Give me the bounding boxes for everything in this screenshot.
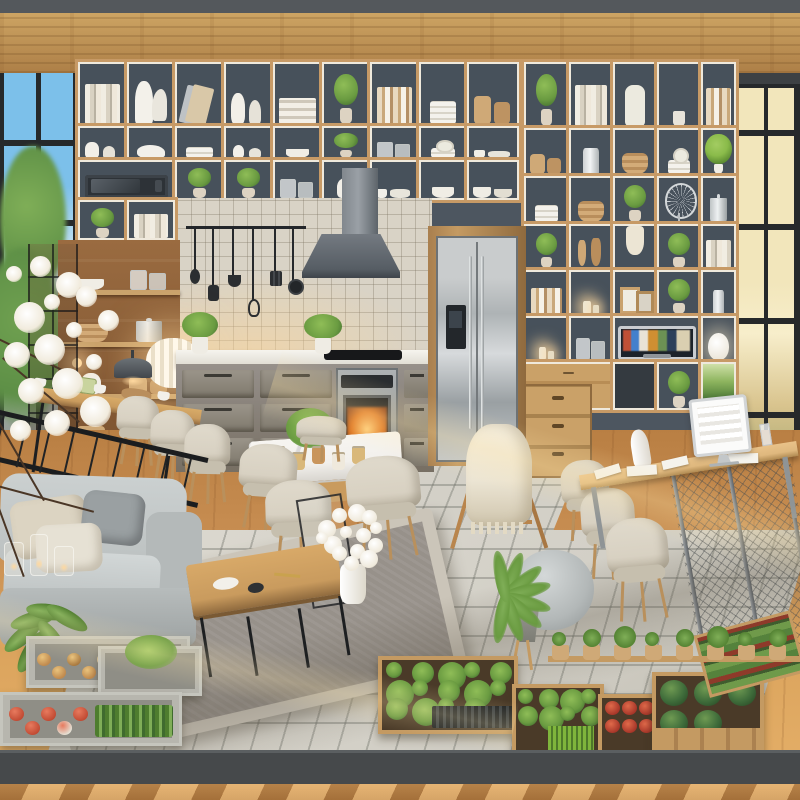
- red-flower: [622, 719, 637, 733]
- platform-edge: [0, 750, 800, 786]
- shelf-item-plant: [331, 74, 362, 124]
- utensil-handle: [212, 229, 214, 287]
- blossom-cluster: [316, 532, 328, 544]
- seedling-tuft: [614, 626, 636, 648]
- shelf-cubby: [569, 128, 613, 176]
- shelf-item-books2: [377, 87, 412, 124]
- chair-leg: [302, 443, 308, 460]
- shelf-item-vases: [228, 93, 269, 124]
- seedling-pot: [645, 645, 662, 660]
- shelf-cubby: [78, 160, 175, 200]
- tomato-greens-tray: [0, 692, 182, 746]
- shelf-item-books: [706, 240, 730, 268]
- tomato: [25, 721, 40, 735]
- shelf-cubby: [613, 270, 657, 316]
- shelf-item-jar: [713, 290, 725, 314]
- shelf-item-books2: [531, 288, 563, 314]
- table-leg: [246, 616, 258, 676]
- shelf-item-candle: [579, 297, 603, 314]
- chair-leg: [571, 510, 576, 541]
- foreground-wood-floor: [0, 784, 800, 800]
- vent-grille: [432, 706, 516, 728]
- utensil-pan: [288, 229, 300, 295]
- onion: [82, 666, 96, 679]
- fridge-handle: [469, 256, 472, 429]
- counter-herb-pot: [304, 314, 342, 354]
- shelf-cubby: [78, 62, 127, 126]
- shelf-cubby: [175, 126, 224, 160]
- shelf-cubby: [224, 62, 273, 126]
- shelf-item-dishes: [186, 147, 212, 158]
- shelf-cubby: [569, 62, 613, 128]
- papers: [627, 464, 658, 476]
- wood-armchair-with-blanket: [448, 420, 552, 552]
- cabbage-head: [660, 680, 688, 706]
- herb-tuft: [490, 680, 506, 696]
- radish: [57, 721, 72, 735]
- shelf-item-jar: [583, 148, 598, 174]
- shelf-cubby: [175, 160, 224, 200]
- shelf-item-microwave: [85, 175, 169, 198]
- babys-breath-bouquet: [310, 502, 386, 606]
- onion: [52, 666, 66, 679]
- shelf-cubby: [78, 200, 127, 240]
- shelf-item-books2: [706, 88, 730, 126]
- shelf-item-fan: [663, 183, 694, 222]
- shelf-cubby: [701, 224, 736, 270]
- lamp-shade: [114, 358, 152, 378]
- desk-leg: [783, 457, 798, 519]
- herb-box: [378, 656, 518, 734]
- utensil-handle: [252, 229, 254, 301]
- shelf-cubby: [701, 270, 736, 316]
- shelf-item-hooks: [574, 238, 608, 268]
- white-carafe: [629, 428, 653, 468]
- herb-tuft: [386, 698, 408, 720]
- stool-leg: [526, 640, 533, 670]
- shelf-item-jars: [574, 340, 608, 360]
- seedling-pot-ledge: [548, 624, 800, 670]
- shelf-cubby: [657, 128, 701, 176]
- fridge-handle: [481, 256, 484, 429]
- tomato: [9, 707, 24, 721]
- utensil-head: [288, 279, 304, 295]
- shelf-cubby: [657, 176, 701, 224]
- shelf-item-boxes: [472, 96, 513, 124]
- shelf-item-bin: [625, 85, 645, 126]
- shelf-cubby: [524, 176, 569, 224]
- chair-leg: [640, 582, 646, 622]
- seedling-leaves: [125, 635, 177, 669]
- utensil-ladle: [228, 229, 240, 291]
- pantry-jars: [128, 272, 171, 290]
- shelf-cubby: [322, 62, 370, 126]
- shelf-item-frames: [618, 292, 652, 314]
- shelf-cubby: [224, 160, 273, 200]
- shelf-cubby: [370, 126, 419, 160]
- seedling-pot: [552, 645, 569, 660]
- desktop-monitor: [688, 394, 753, 470]
- drawer-handle: [410, 442, 424, 445]
- shelf-item-dishes: [535, 205, 559, 222]
- shelf-item-plant: [184, 168, 216, 198]
- seedling-tray: [98, 646, 202, 696]
- seedling-pot: [676, 645, 693, 660]
- shelf-cubby: [613, 316, 701, 362]
- shelf-cubby: [524, 270, 569, 316]
- pantry-bowl: [78, 279, 104, 290]
- shelf-item-figurines: [231, 145, 267, 158]
- shelf-cubby: [127, 200, 175, 240]
- shelf-cubby: [127, 126, 175, 160]
- shelf-item-books: [134, 214, 168, 238]
- shelf-cubby: [524, 128, 569, 176]
- herb-tuft: [412, 680, 428, 696]
- oven-control-panel: [341, 375, 392, 387]
- pantry-item-pot: [124, 304, 174, 342]
- shelf-cubby: [370, 62, 419, 126]
- drawer-handle: [410, 408, 424, 411]
- herb-foliage: [182, 312, 218, 338]
- herb-tuft: [518, 689, 533, 704]
- shelf-cubby: [467, 160, 519, 200]
- shelf-item-cups: [375, 189, 415, 198]
- shelf-cubby: [569, 270, 613, 316]
- shelf-cubby: [419, 126, 467, 160]
- monitor-screen: [688, 394, 752, 458]
- utensil-spoon: [190, 229, 202, 285]
- chair-leg: [620, 582, 624, 622]
- shelf-cubby: [613, 176, 657, 224]
- seedling-tuft: [738, 632, 752, 646]
- shelf-item-boxes: [529, 154, 564, 174]
- shelf-cubby: [613, 128, 657, 176]
- utensil-handle: [274, 229, 276, 273]
- shelf-cubby: [467, 62, 519, 126]
- herb-tuft: [386, 662, 402, 678]
- chair-leg: [242, 494, 251, 527]
- onion: [37, 653, 51, 666]
- shelf-cubby: [224, 126, 273, 160]
- chair-leg: [386, 520, 392, 560]
- blossom-cluster: [370, 522, 382, 534]
- cup: [93, 384, 106, 395]
- utensil-head: [228, 275, 241, 287]
- shelf-item-plant: [532, 233, 561, 268]
- ice-water-dispenser: [446, 305, 466, 349]
- shelf-item-pitcher: [129, 81, 173, 124]
- shelf-cubby: [273, 62, 322, 126]
- blossom-cluster: [360, 550, 378, 568]
- pantry-pot: [136, 321, 162, 342]
- shelf-item-candle: [534, 343, 559, 360]
- shelf-item-topiary: [704, 134, 733, 174]
- blossom-cluster: [344, 556, 359, 571]
- herb-pot: [192, 337, 208, 354]
- chair-leg: [657, 579, 668, 619]
- shelf-cubby: [569, 176, 613, 224]
- range-hood-duct: [342, 168, 378, 238]
- pantry-item-jars: [124, 252, 174, 290]
- drawer-handle: [204, 374, 232, 377]
- shelf-cubby: [322, 126, 370, 160]
- shelf-item-jars: [375, 144, 414, 158]
- red-flower: [622, 701, 637, 715]
- shelf-item-pot: [710, 198, 726, 222]
- shelf-cubby: [701, 316, 736, 362]
- shelf-cubby: [657, 62, 701, 128]
- shelf-cubby: [175, 62, 224, 126]
- shelf-item-tv: [618, 326, 695, 360]
- dome-task-lamp: [110, 350, 156, 392]
- shelf-item-vases: [82, 142, 123, 158]
- drawer-handle: [282, 374, 310, 377]
- shelf-item-bowl: [286, 149, 309, 158]
- red-flower: [605, 701, 620, 715]
- lamp-glow: [122, 376, 144, 386]
- utensil-turner: [270, 229, 282, 287]
- shelf-item-gourd: [708, 333, 728, 360]
- blossom-cluster: [340, 526, 352, 538]
- shelf-cubby: [569, 316, 613, 362]
- shelf-cubby: [78, 126, 127, 160]
- shelf-item-basket: [622, 153, 648, 174]
- shelf-item-greens: [662, 71, 696, 126]
- utensil-handle: [292, 229, 294, 281]
- utensil-handle: [232, 229, 234, 277]
- shelf-cubby: [467, 126, 519, 160]
- chair-leg: [220, 472, 226, 502]
- shelf-item-big-books: [279, 98, 316, 124]
- herb-tuft: [581, 689, 596, 704]
- herb-tuft: [518, 706, 538, 726]
- chair-leg: [407, 516, 418, 556]
- shelf-cubby: [701, 176, 736, 224]
- shelf-cubby: [613, 62, 657, 128]
- shelf-item-plant: [621, 185, 649, 222]
- shelf-cubby: [419, 160, 467, 200]
- shelf-cubby: [524, 62, 569, 128]
- shelf-item-books: [575, 85, 606, 126]
- shelf-cubby: [613, 224, 657, 270]
- shelf-item-dark: [615, 364, 655, 408]
- seedling-tuft: [645, 632, 659, 646]
- utensil-head: [208, 285, 219, 301]
- tomato: [73, 707, 88, 721]
- knit-throw-blanket: [466, 424, 532, 526]
- potato: [67, 653, 81, 666]
- shelf-item-dishes: [430, 101, 456, 124]
- counter-herb-pot: [182, 312, 218, 354]
- shelf-item-plant: [87, 208, 119, 238]
- shelf-item-plates: [668, 148, 690, 174]
- shelf-cubby: [701, 128, 736, 176]
- shelf-item-plates: [431, 140, 455, 158]
- shelf-item-towel: [626, 226, 644, 255]
- seedling-tuft: [552, 632, 566, 646]
- table-leg: [298, 608, 310, 668]
- shelf-cubby: [701, 62, 736, 128]
- shelf-item-books: [85, 84, 120, 124]
- herb-tuft: [560, 706, 575, 721]
- shelf-item-jars: [278, 181, 317, 198]
- shelf-cubby: [613, 362, 657, 410]
- utensil-head: [190, 269, 200, 284]
- seedling-tuft: [676, 629, 694, 647]
- seedling-tuft: [769, 629, 787, 647]
- shelf-item-plant: [665, 233, 693, 268]
- shelf-cubby: [657, 270, 701, 316]
- wheatgrass: [548, 726, 594, 752]
- seedling-tuft: [583, 629, 601, 647]
- monitor-base: [709, 461, 739, 467]
- chair-leg: [336, 444, 340, 461]
- herb-tuft: [464, 662, 480, 678]
- shelf-item-bird: [137, 145, 164, 158]
- railing-post: [0, 415, 5, 462]
- shelf-item-bowls: [473, 187, 513, 198]
- shelf-cubby: [524, 224, 569, 270]
- shelf-item-cups: [472, 150, 514, 158]
- seedling-pot: [583, 645, 600, 660]
- greens-row: [95, 705, 173, 737]
- drawer-handle: [410, 374, 424, 377]
- shelf-cubby: [524, 316, 569, 362]
- shelf-cubby: [657, 224, 701, 270]
- shelf-item-plant: [233, 168, 265, 198]
- shelf-item-plant: [665, 279, 693, 314]
- dining-chair-back: [295, 415, 347, 463]
- seedling-tuft: [707, 626, 729, 648]
- blossom-cluster: [332, 508, 347, 523]
- shelf-item-bowl: [432, 187, 455, 198]
- shelf-cubby: [569, 224, 613, 270]
- shelf-item-basket: [578, 201, 604, 222]
- utensil-spatula: [208, 229, 220, 301]
- utensil-head: [270, 271, 282, 286]
- pantry-basket: [75, 324, 108, 342]
- utensil-handle: [194, 229, 196, 271]
- seedling-pot: [738, 645, 755, 660]
- utensil-head: [248, 299, 260, 317]
- interior-scene-photo: [0, 0, 800, 800]
- tomato: [41, 707, 56, 721]
- glass-lantern-jars: [0, 512, 84, 576]
- shelf-cubby: [419, 62, 467, 126]
- herb-foliage: [304, 314, 342, 339]
- herb-pot: [315, 338, 332, 354]
- shelf-item-plant: [331, 133, 362, 158]
- clerestory-band: [0, 0, 800, 14]
- shelf-item-plant: [532, 74, 561, 126]
- shelf-cubby: [127, 62, 175, 126]
- herb-box: [512, 684, 604, 756]
- shelf-cubby: [273, 160, 322, 200]
- red-flower-box: [598, 694, 658, 756]
- chair-leg: [320, 445, 324, 462]
- shelf-cubby: [273, 126, 322, 160]
- utensil-whisk: [248, 229, 260, 315]
- red-flower: [605, 719, 620, 733]
- shelf-item-lean-book: [185, 84, 214, 126]
- drinking-glass: [759, 423, 772, 446]
- desk-leg: [591, 487, 606, 549]
- seedling-pot: [769, 645, 786, 660]
